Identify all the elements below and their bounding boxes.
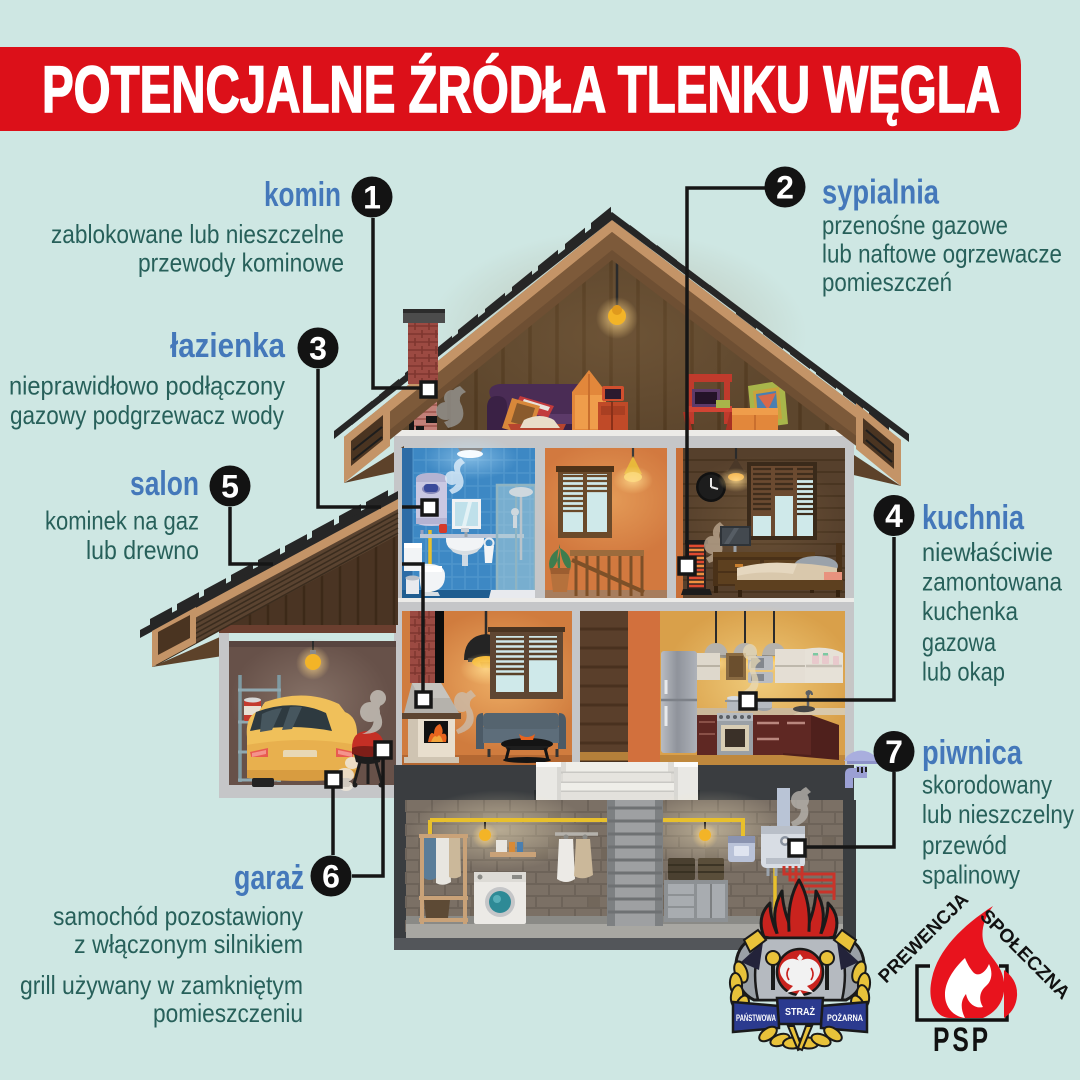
svg-text:komin: komin — [264, 176, 341, 214]
svg-text:POTENCJALNE ŹRÓDŁA TLENKU WĘGL: POTENCJALNE ŹRÓDŁA TLENKU WĘGLA — [42, 52, 1000, 126]
svg-text:pomieszczeniu: pomieszczeniu — [153, 998, 303, 1028]
svg-text:samochód pozostawiony: samochód pozostawiony — [53, 901, 303, 931]
svg-text:przewody kominowe: przewody kominowe — [138, 248, 344, 278]
svg-text:PSP: PSP — [933, 1021, 991, 1059]
svg-text:kuchenka: kuchenka — [922, 596, 1018, 626]
svg-text:gazowa: gazowa — [922, 627, 996, 657]
svg-text:5: 5 — [221, 469, 239, 505]
svg-text:lub okap: lub okap — [922, 657, 1005, 687]
svg-text:zamontowana: zamontowana — [922, 567, 1062, 597]
svg-text:garaż: garaż — [234, 859, 304, 897]
svg-text:grill używany w zamkniętym: grill używany w zamkniętym — [20, 970, 303, 1000]
svg-text:1: 1 — [363, 180, 381, 216]
svg-text:STRAŻ: STRAŻ — [785, 1005, 815, 1018]
svg-text:przewód: przewód — [922, 830, 1007, 860]
svg-text:zablokowane lub nieszczelne: zablokowane lub nieszczelne — [51, 219, 344, 249]
svg-text:7: 7 — [885, 734, 903, 770]
svg-text:4: 4 — [885, 498, 903, 534]
svg-text:skorodowany: skorodowany — [922, 770, 1052, 800]
svg-text:salon: salon — [130, 465, 199, 503]
svg-text:3: 3 — [309, 331, 327, 367]
svg-text:lub naftowe ogrzewacze: lub naftowe ogrzewacze — [822, 239, 1062, 269]
svg-text:łazienka: łazienka — [170, 327, 286, 365]
svg-text:2: 2 — [776, 170, 794, 206]
svg-text:z włączonym silnikiem: z włączonym silnikiem — [74, 929, 303, 959]
svg-text:PAŃSTWOWA: PAŃSTWOWA — [736, 1013, 776, 1023]
svg-text:kuchnia: kuchnia — [922, 499, 1025, 537]
svg-text:piwnica: piwnica — [922, 734, 1023, 772]
svg-text:niewłaściwie: niewłaściwie — [922, 537, 1053, 567]
svg-text:6: 6 — [322, 859, 340, 895]
svg-text:spalinowy: spalinowy — [922, 860, 1020, 890]
svg-text:pomieszczeń: pomieszczeń — [822, 267, 952, 297]
svg-text:nieprawidłowo podłączony: nieprawidłowo podłączony — [9, 371, 285, 401]
svg-text:gazowy podgrzewacz wody: gazowy podgrzewacz wody — [10, 400, 284, 430]
svg-text:POŻARNA: POŻARNA — [827, 1013, 863, 1023]
svg-text:kominek na gaz: kominek na gaz — [45, 506, 199, 536]
svg-text:sypialnia: sypialnia — [822, 174, 940, 212]
svg-text:przenośne gazowe: przenośne gazowe — [822, 210, 1008, 240]
svg-text:lub nieszczelny: lub nieszczelny — [922, 799, 1074, 829]
svg-text:lub drewno: lub drewno — [86, 535, 199, 565]
